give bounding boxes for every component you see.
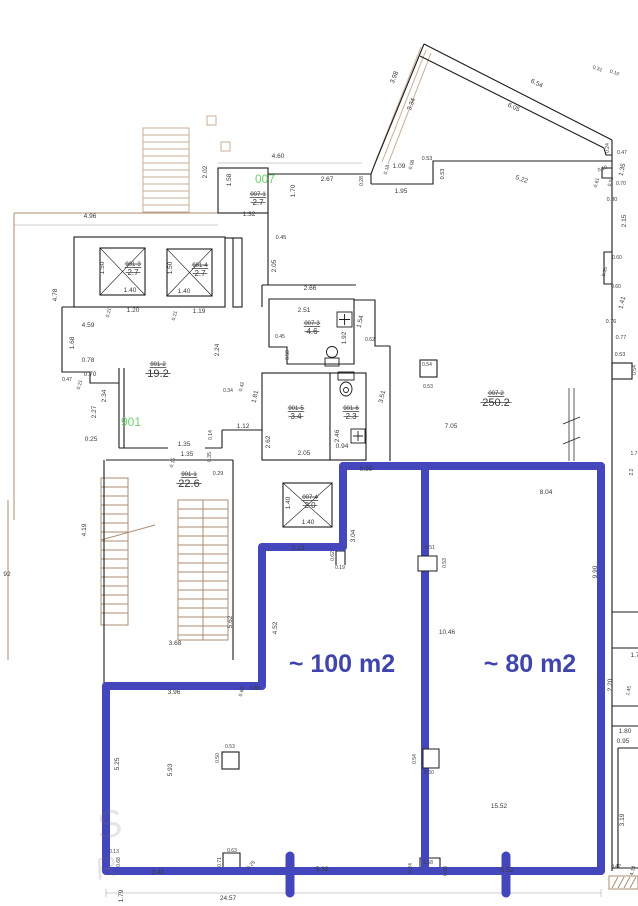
dimension-label: 0.21 (171, 310, 179, 321)
dimension-label: 1.09 (393, 163, 406, 170)
dimension-label: 1.19 (193, 308, 206, 315)
dimension-label: 0.70 (616, 181, 626, 187)
dimension-label: 0.13 (109, 849, 119, 855)
dimension-label: 0.53 (225, 744, 235, 750)
dimension-label: 0.53 (423, 384, 433, 390)
stairs (101, 478, 228, 640)
dimension-label: 2.34 (101, 389, 108, 402)
dimension-label: 9.90 (592, 565, 599, 578)
dimension-label: 3.19 (619, 813, 626, 826)
dimension-label: 0.29 (213, 471, 224, 477)
dimension-label: 1.79 (118, 889, 125, 902)
dimension-label: 5.38 (316, 866, 329, 873)
dimension-label: 0.31 (592, 65, 603, 74)
dimension-label: 1.20 (127, 307, 140, 314)
sink-icon-2 (351, 429, 365, 443)
dimension-label: 1.68 (69, 336, 76, 349)
dimension-label: 0.45 (276, 235, 287, 241)
dimension-label: 0.58 (285, 350, 291, 360)
dimension-label: 0.95 (617, 738, 630, 745)
dimension-label: 0.60 (611, 284, 621, 290)
dimension-label: 2.66 (304, 285, 317, 292)
dimension-label: 0.51 (607, 176, 615, 187)
unit-number-label: 007 (255, 172, 275, 186)
dimension-label: 1.50 (99, 261, 106, 274)
dimension-label: 2.51 (298, 307, 311, 314)
dimension-label: 1.41 (618, 295, 628, 309)
dimension-label: 1.35 (178, 441, 191, 448)
toilet-icon (325, 347, 339, 367)
dimension-label: 0.83 (250, 686, 260, 692)
floorplan-page: S R 4.964.602.021.582.670.281.090.180.08… (0, 0, 638, 906)
dimension-label: 2.05 (271, 259, 278, 272)
dimension-label: 0.24 (408, 863, 414, 873)
dimension-label: 2.67 (321, 176, 334, 183)
dimension-label: 0.47 (617, 150, 627, 156)
dimension-label: 0.53 (440, 169, 446, 180)
floorplan-svg: S R 4.964.602.021.582.670.281.090.180.08… (0, 0, 638, 906)
dimension-label: 0.54 (412, 754, 418, 764)
dimension-label: 1.35 (181, 451, 194, 458)
dimension-label: 1.81 (251, 389, 261, 403)
dimension-label: 0.62 (330, 551, 336, 561)
dimension-label: 0.94 (336, 443, 349, 450)
dimension-label: 1.80 (619, 728, 632, 735)
dimension-label: 1.7 (631, 451, 638, 457)
dimension-label: 0.08 (408, 159, 416, 170)
dimension-label: 0.63 (227, 848, 237, 854)
dimension-label: 1.50 (167, 261, 174, 274)
dimension-label: 1.32 (243, 211, 256, 218)
dimension-label: 0.18 (383, 164, 391, 175)
dimension-label: 0.78 (82, 357, 95, 364)
dimension-label: 1.40 (302, 519, 315, 526)
dimension-label: 2.46 (334, 429, 341, 442)
fixtures (325, 312, 365, 443)
dimension-label: 1.58 (226, 173, 233, 186)
walls-black (62, 44, 638, 871)
dimension-label: 4.14 (629, 865, 637, 876)
dimension-label: 2.62 (265, 435, 272, 448)
dimension-label: 0.53 (615, 352, 626, 358)
dimension-label: 0.54 (422, 362, 432, 368)
dimension-label: 1.70 (290, 184, 297, 197)
dimension-label: 24.57 (220, 895, 237, 902)
dimension-label: 0.62 (365, 337, 375, 343)
room-area-label: 250.2 (482, 397, 510, 409)
dimension-label: 0.60 (424, 770, 434, 776)
dimension-label: 0.45 (275, 334, 285, 340)
dimension-label: 6.05 (506, 102, 521, 114)
dimension-label: 0.10 (609, 69, 620, 78)
dimension-label: 10.46 (439, 629, 456, 636)
dimension-label: 3.40 (152, 869, 165, 876)
dimension-label: 4.60 (272, 153, 285, 160)
room-area-label: 22.6 (178, 478, 199, 490)
dimension-label: 4.52 (272, 621, 279, 634)
dimension-label: 5.62 (227, 615, 234, 628)
dimension-label: 0.38 (443, 866, 449, 876)
unit-number-label: 901 (121, 415, 141, 429)
dimension-label: 0.21 (76, 379, 84, 390)
dimension-label: 2.2 (629, 468, 635, 475)
dimension-label: 0.42 (238, 381, 246, 392)
toilet-icon-2 (338, 372, 354, 396)
dimension-label: 7.05 (445, 423, 458, 430)
dimension-label: 8.04 (540, 489, 553, 496)
dimension-label: 2.23 (292, 545, 305, 552)
dimension-label: 0.60 (238, 686, 246, 697)
dimension-label: 0.51 (425, 545, 435, 551)
dimension-label: 0.35 (207, 452, 213, 462)
dimension-label: 0.68 (116, 857, 122, 867)
dimension-label: 0.42 (611, 864, 621, 870)
dimension-label: 6.54 (529, 78, 544, 90)
dimension-label: 4.19 (81, 523, 88, 536)
dimension-label: 1.45 (625, 685, 633, 696)
dimension-label: 3.68 (169, 640, 182, 647)
dimension-label: 15.52 (491, 803, 508, 810)
dimension-label: 1.40 (178, 288, 191, 295)
dimension-label: 0.50 (215, 753, 221, 763)
dimension-label: 2.02 (202, 165, 209, 178)
dimension-label: 0.25 (85, 436, 98, 443)
watermark-letter: R (92, 850, 121, 887)
dimension-label: 0.60 (612, 255, 622, 261)
dimension-label: 0.55 (601, 266, 609, 277)
dimension-label: 3.34 (406, 97, 417, 112)
dimension-label: 1.7 (630, 652, 638, 659)
dimension-label: 1.54 (356, 314, 366, 328)
dimension-label: 3.98 (389, 70, 400, 85)
dimension-label: 0.61 (593, 177, 601, 188)
dimension-label: 1.40 (124, 287, 137, 294)
area-size-label: ~ 100 m2 (289, 650, 395, 678)
dimension-label: 2.05 (298, 450, 311, 457)
dimension-label: 1.40 (285, 496, 292, 509)
dimension-label: 3.04 (350, 529, 357, 542)
dimension-label: 1.58 (423, 860, 433, 866)
dimension-label: 2.20 (607, 678, 614, 691)
dimension-label: 0.71 (217, 857, 223, 867)
room-area-label: 19.2 (147, 368, 168, 380)
area-size-label: ~ 80 m2 (484, 650, 576, 678)
dimension-label: 0.15 (169, 457, 177, 468)
dimension-label: 2.15 (621, 214, 628, 227)
dimension-label: 0.54 (632, 365, 638, 375)
dimension-label: 1.95 (395, 188, 408, 195)
dimension-label: 2.24 (214, 343, 221, 356)
dimension-label: 0.19 (335, 565, 345, 571)
dimension-label: 0.76 (606, 319, 617, 325)
dimension-label: 5.25 (114, 757, 121, 770)
sink-icon (337, 312, 352, 327)
dimension-label: 0.70 (84, 371, 97, 378)
dimension-label: 5.93 (167, 763, 174, 776)
dimension-label: 0.47 (62, 377, 72, 383)
dimension-label: 0.28 (359, 176, 365, 186)
dimension-label: 0.21 (105, 307, 113, 318)
dimension-label: 4.96 (84, 213, 97, 220)
dimension-label: 5.22 (514, 174, 529, 185)
dimension-label: 0.80 (607, 197, 618, 203)
dimension-label: 0.24 (605, 143, 611, 153)
dimension-label: 5.52 (501, 867, 514, 874)
dimension-label: 0.10 (597, 165, 608, 174)
dimension-label: 1.92 (341, 331, 348, 344)
dimension-label: 0.77 (616, 335, 627, 341)
dimension-label: 0.53 (442, 558, 448, 568)
dimension-label: 0.53 (422, 156, 433, 162)
dimension-label: 0.99 (360, 466, 373, 473)
dimension-label: 1.12 (237, 423, 250, 430)
dimension-label: 3.96 (168, 689, 181, 696)
dimension-label: 4.78 (52, 288, 59, 301)
dimension-label: 2.27 (91, 405, 98, 418)
watermark-letter: S (92, 802, 127, 849)
dimension-label: 0.14 (208, 430, 214, 440)
dimension-label: 4.59 (82, 322, 95, 329)
dimension-label: 3.51 (378, 389, 388, 403)
dimension-label: 92 (3, 571, 11, 578)
dimension-label: 1.35 (618, 162, 628, 176)
dimension-label: 0.34 (223, 388, 233, 394)
